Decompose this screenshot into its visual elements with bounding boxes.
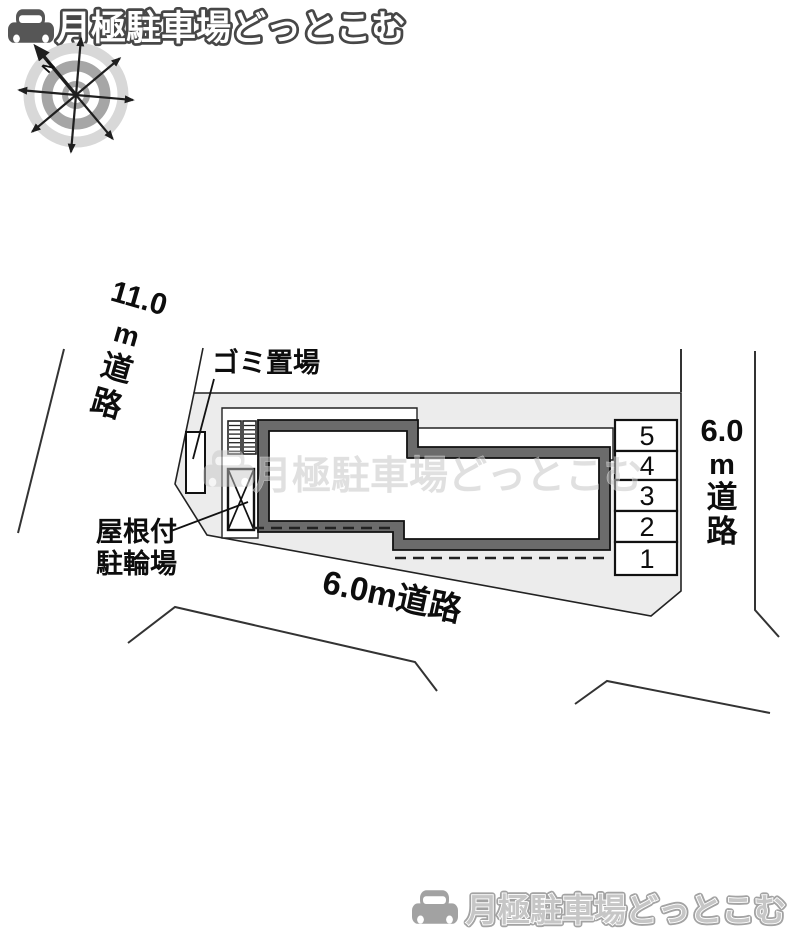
left-road-label: 11.0 m 道 路: [77, 275, 171, 429]
svg-text:路: 路: [707, 514, 739, 549]
svg-text:11.0: 11.0: [107, 275, 171, 322]
bicycle-label-line2: 駐輪場: [96, 548, 177, 579]
footer-logo: 月極駐車場どっとこむ 月極駐車場どっとこむ: [412, 890, 786, 928]
svg-text:道: 道: [97, 347, 136, 389]
bottom-road-far-edge: [128, 607, 437, 691]
svg-text:m: m: [709, 449, 735, 481]
bicycle-label-line1: 屋根付: [96, 517, 177, 547]
svg-text:5: 5: [639, 421, 654, 451]
header-logo: 月極駐車場どっとこむ: [8, 9, 406, 48]
watermark-text: 月極駐車場どっとこむ: [253, 455, 643, 498]
svg-text:1: 1: [639, 544, 654, 574]
left-road-far-edge: [18, 349, 64, 533]
footer-logo-text: 月極駐車場どっとこむ: [466, 892, 786, 928]
garbage-label: ゴミ置場: [212, 347, 320, 378]
right-road-label: 6.0 m 道 路: [700, 413, 743, 549]
svg-text:2: 2: [639, 512, 654, 542]
svg-text:6.0: 6.0: [700, 413, 743, 448]
garbage-area-box: [186, 432, 205, 493]
svg-text:路: 路: [87, 383, 127, 425]
svg-text:m: m: [110, 316, 142, 353]
right-road-far-edge: [755, 351, 779, 637]
svg-text:道: 道: [707, 480, 738, 515]
car-icon: [8, 9, 54, 43]
bottom-right-boundary: [575, 681, 770, 713]
watermark: 月極駐車場どっとこむ: [203, 450, 643, 498]
parcel-left-boundary-extension: [194, 348, 203, 393]
site-plan-canvas: 月極駐車場どっとこむ N: [0, 0, 800, 940]
header-logo-text: 月極駐車場どっとこむ: [56, 9, 406, 48]
compass-rose: N: [19, 38, 133, 152]
compass-arrows: [19, 38, 133, 152]
footer-car-icon: [412, 890, 458, 924]
